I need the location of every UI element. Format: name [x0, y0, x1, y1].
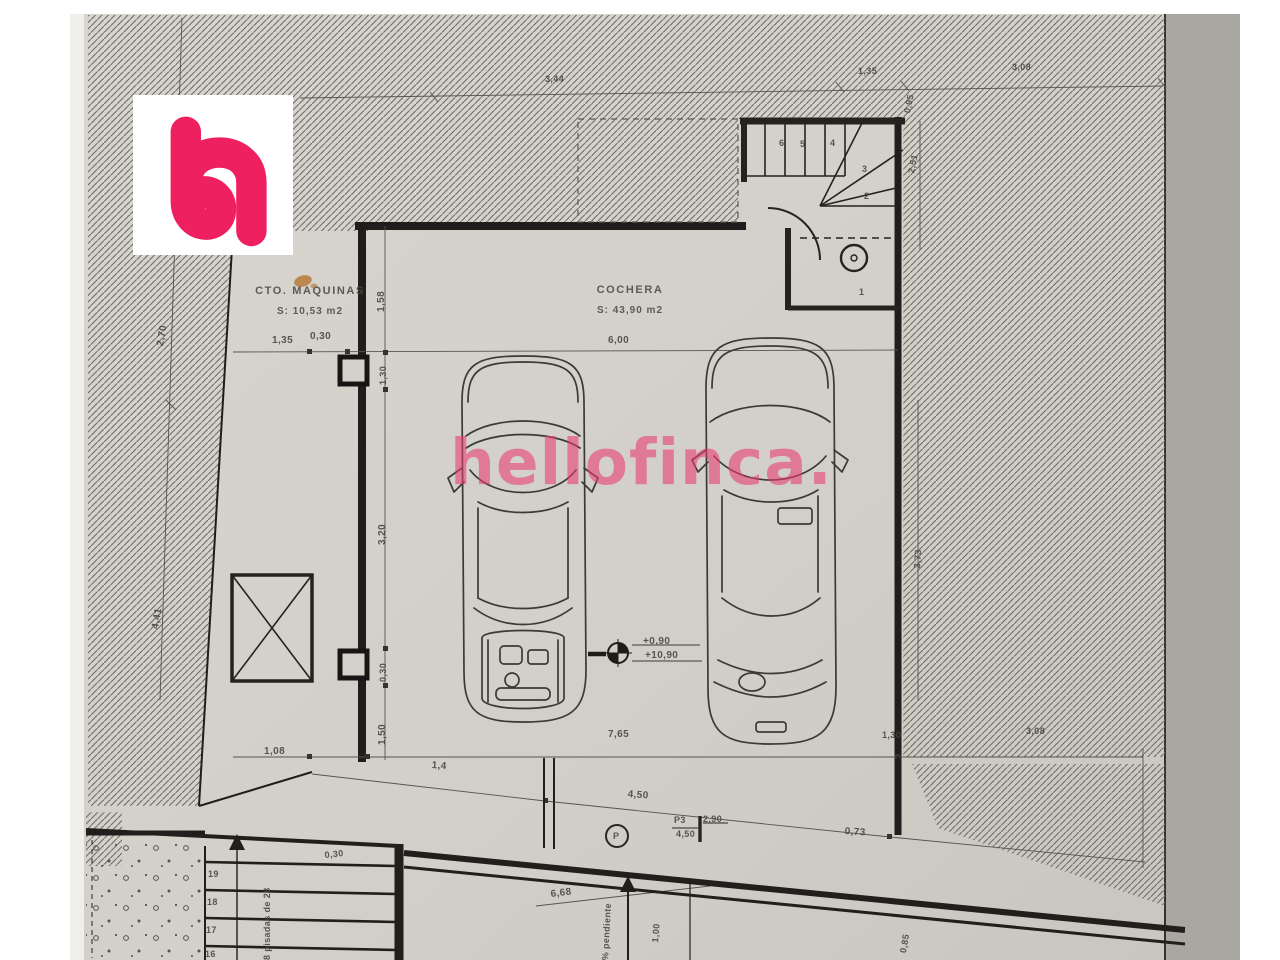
- hellofinca-logo-icon: [133, 95, 293, 255]
- note-treads: 8 pisadas de 28: [262, 887, 272, 960]
- room-name-garage: COCHERA: [560, 284, 700, 296]
- dim-ramp-d: 1,00: [650, 923, 662, 943]
- stair-num-5: 5: [800, 139, 805, 149]
- stair-num-17: 17: [206, 925, 217, 935]
- hellofinca-logo: h: [133, 95, 293, 255]
- dim-bottom-b: 1,4: [431, 760, 447, 772]
- shaft-box: [232, 575, 312, 681]
- stair-num-6: 6: [779, 138, 784, 148]
- stair-num-1: 1: [859, 287, 864, 297]
- door-width: 2,90: [703, 814, 722, 824]
- dim-top-a: 3,44: [545, 74, 564, 84]
- dim-chain-d: 0,30: [378, 663, 388, 682]
- dim-chain-a: 1,58: [376, 291, 387, 312]
- room-name-machine: CTO. MAQUINAS: [230, 285, 390, 297]
- stair-num-3: 3: [862, 164, 867, 174]
- dim-chain-b: 1,30: [378, 366, 388, 385]
- dim-bottom-e: 3,08: [1026, 726, 1045, 736]
- dim-front-a: 1,35: [272, 335, 293, 346]
- dim-top-c: 3,08: [1012, 62, 1031, 72]
- dim-chain-c: 3,20: [377, 524, 388, 545]
- stair-num-19: 19: [208, 869, 219, 879]
- stair-num-16: 16: [205, 949, 216, 959]
- door-height: 4,50: [676, 829, 695, 839]
- dim-right-c: 3,73: [912, 549, 923, 569]
- dim-ramp-a: 4,50: [627, 789, 649, 801]
- level-lower: +10,90: [645, 650, 678, 661]
- dim-ramp-b: 0,73: [844, 826, 866, 838]
- room-area-machine: S: 10,53 m2: [230, 306, 390, 317]
- terrain-stipple: [86, 838, 205, 960]
- dim-front-c: 6,00: [608, 335, 629, 346]
- dim-front-b: 0,30: [310, 331, 331, 342]
- floorplan-scan: CTO. MAQUINAS S: 10,53 m2 COCHERA S: 43,…: [0, 0, 1280, 960]
- dim-chain-e: 1,50: [377, 724, 388, 745]
- dim-bottom-a: 1,08: [264, 746, 285, 757]
- socket-label: P: [613, 831, 619, 841]
- stair-num-4: 4: [830, 138, 835, 148]
- dim-ramp-e: 0,30: [324, 848, 344, 860]
- door-tag: P3: [674, 815, 686, 825]
- dim-bottom-d: 1,30: [882, 730, 901, 740]
- stair-num-2: 2: [864, 191, 869, 201]
- dim-top-b: 1,35: [858, 66, 877, 76]
- hellofinca-watermark: hellofinca.: [450, 426, 833, 499]
- room-area-garage: S: 43,90 m2: [560, 305, 700, 316]
- level-upper: +0,90: [643, 636, 670, 647]
- stair-num-18: 18: [207, 897, 218, 907]
- dim-bottom-c: 7,65: [608, 729, 629, 740]
